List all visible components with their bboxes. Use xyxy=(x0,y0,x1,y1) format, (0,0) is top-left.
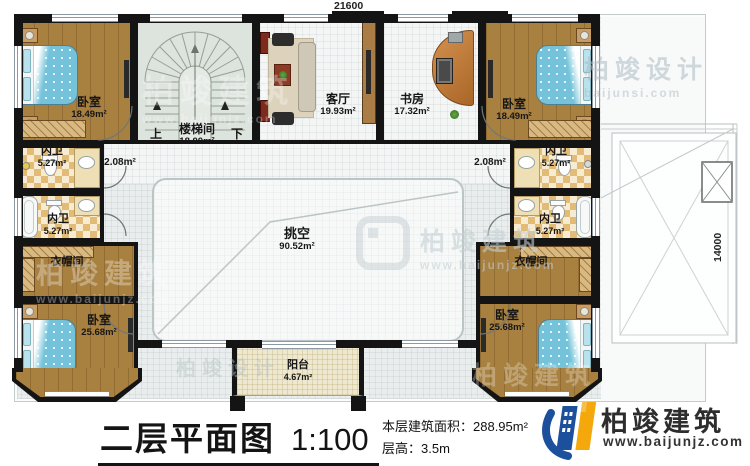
armchair xyxy=(272,112,294,125)
room-label-bedroom-tl: 卧室 18.49m² xyxy=(71,95,106,120)
nightstand xyxy=(21,28,38,43)
tv xyxy=(128,318,133,352)
armchair xyxy=(272,33,294,46)
hall-area-left: 2.08m² xyxy=(104,157,136,168)
window xyxy=(150,14,242,22)
sink-basin xyxy=(78,156,95,169)
nightstand xyxy=(21,304,38,319)
hall-area-right: 2.08m² xyxy=(474,157,506,168)
pillow xyxy=(23,49,31,73)
void-fold-line xyxy=(154,180,462,340)
room-label-study: 书房 17.32m² xyxy=(394,92,429,117)
sink-basin xyxy=(518,199,535,212)
window xyxy=(512,14,578,22)
window xyxy=(14,308,22,358)
window xyxy=(592,198,600,236)
window xyxy=(592,46,600,108)
plan-title-row: 二层平面图 1:100 xyxy=(98,412,379,466)
lamp-icon xyxy=(580,31,589,40)
wardrobe xyxy=(528,120,594,138)
pillow xyxy=(23,77,31,101)
company-logo-icon xyxy=(538,396,596,460)
room-label-living: 客厅 19.93m² xyxy=(320,92,355,117)
building-area-text: 本层建筑面积：288.95m² xyxy=(382,416,528,435)
tv xyxy=(366,50,371,94)
window xyxy=(402,340,458,348)
living-room xyxy=(256,16,380,144)
wardrobe xyxy=(20,120,86,138)
room-label-bath-l1: 内卫 5.27m² xyxy=(38,145,67,169)
wall xyxy=(226,340,262,348)
double-bed xyxy=(536,45,594,105)
room-label-cloak-r: 衣帽间 xyxy=(515,256,548,269)
room-label-balcony: 阳台 4.67m² xyxy=(284,359,313,383)
stair-up-label: 上 xyxy=(150,125,162,142)
lamp-icon xyxy=(25,307,34,316)
plan-scale: 1:100 xyxy=(291,422,369,458)
bedroom-top-left xyxy=(16,16,134,144)
plan-title: 二层平面图 xyxy=(100,412,275,460)
bed-sheet-fold xyxy=(560,46,580,104)
stair-down-arrow-icon xyxy=(221,101,229,110)
double-height-void xyxy=(152,178,464,342)
sink-basin xyxy=(78,199,95,212)
balcony-door xyxy=(262,341,336,349)
floor-height-text: 层高：3.5m xyxy=(382,438,450,457)
window xyxy=(398,14,448,22)
room-label-cloak-l: 衣帽间 xyxy=(51,256,84,269)
plant-icon xyxy=(450,110,459,119)
column xyxy=(351,396,366,411)
stair-up-arrow-icon xyxy=(153,101,161,110)
room-label-bedroom-bl: 卧室 25.68m² xyxy=(81,313,116,338)
pillow xyxy=(583,323,591,347)
computer-tower xyxy=(448,32,463,43)
tv xyxy=(488,60,493,98)
pillow xyxy=(23,323,31,347)
bedroom-top-right xyxy=(482,16,598,144)
window xyxy=(14,46,22,108)
study-room xyxy=(380,16,482,144)
column xyxy=(230,396,245,411)
room-label-bedroom-tr: 卧室 18.49m² xyxy=(496,97,531,122)
window xyxy=(592,308,600,358)
dimension-top: 21600 xyxy=(334,0,363,12)
wall xyxy=(332,11,384,19)
cloakroom-left xyxy=(16,242,138,300)
bed-sheet-fold xyxy=(34,320,54,376)
wall xyxy=(136,340,162,348)
cloakroom-right xyxy=(476,242,598,300)
room-label-bath-l2: 内卫 5.27m² xyxy=(44,213,73,237)
pillow xyxy=(583,49,591,73)
wall xyxy=(336,340,402,348)
window xyxy=(284,14,328,22)
room-label-bedroom-br: 卧室 25.68m² xyxy=(489,308,524,333)
tv xyxy=(481,318,486,352)
window xyxy=(52,14,118,22)
pillow xyxy=(583,77,591,101)
window xyxy=(14,198,22,236)
lamp-icon xyxy=(580,307,589,316)
fixture-icon xyxy=(22,162,30,170)
wall xyxy=(452,11,508,19)
lamp-icon xyxy=(25,31,34,40)
room-label-bath-r1: 内卫 5.27m² xyxy=(542,145,571,169)
dimension-right: 14000 xyxy=(712,233,724,262)
tv xyxy=(124,60,129,98)
wall xyxy=(458,340,478,348)
sofa xyxy=(298,42,316,112)
plant-icon xyxy=(279,71,287,79)
room-label-void: 挑空 90.52m² xyxy=(279,226,314,253)
bedroom-bottom-left xyxy=(16,300,138,372)
sink-basin xyxy=(518,156,535,169)
room-label-bath-r2: 内卫 5.27m² xyxy=(536,213,565,237)
window xyxy=(162,340,226,348)
company-website: www.baijunjz.com xyxy=(603,434,744,449)
room-label-stair: 楼梯间 18.00m² xyxy=(179,122,215,147)
floor-plan-canvas: 卧室 18.49m² 上 楼梯间 18.00m² 下 客厅 19.93m² 书房… xyxy=(0,0,750,466)
bed-sheet-fold xyxy=(34,46,54,104)
double-bed xyxy=(20,45,78,105)
stair-down-label: 下 xyxy=(231,125,243,142)
monitor xyxy=(436,58,453,84)
bed-sheet-fold xyxy=(560,320,580,376)
